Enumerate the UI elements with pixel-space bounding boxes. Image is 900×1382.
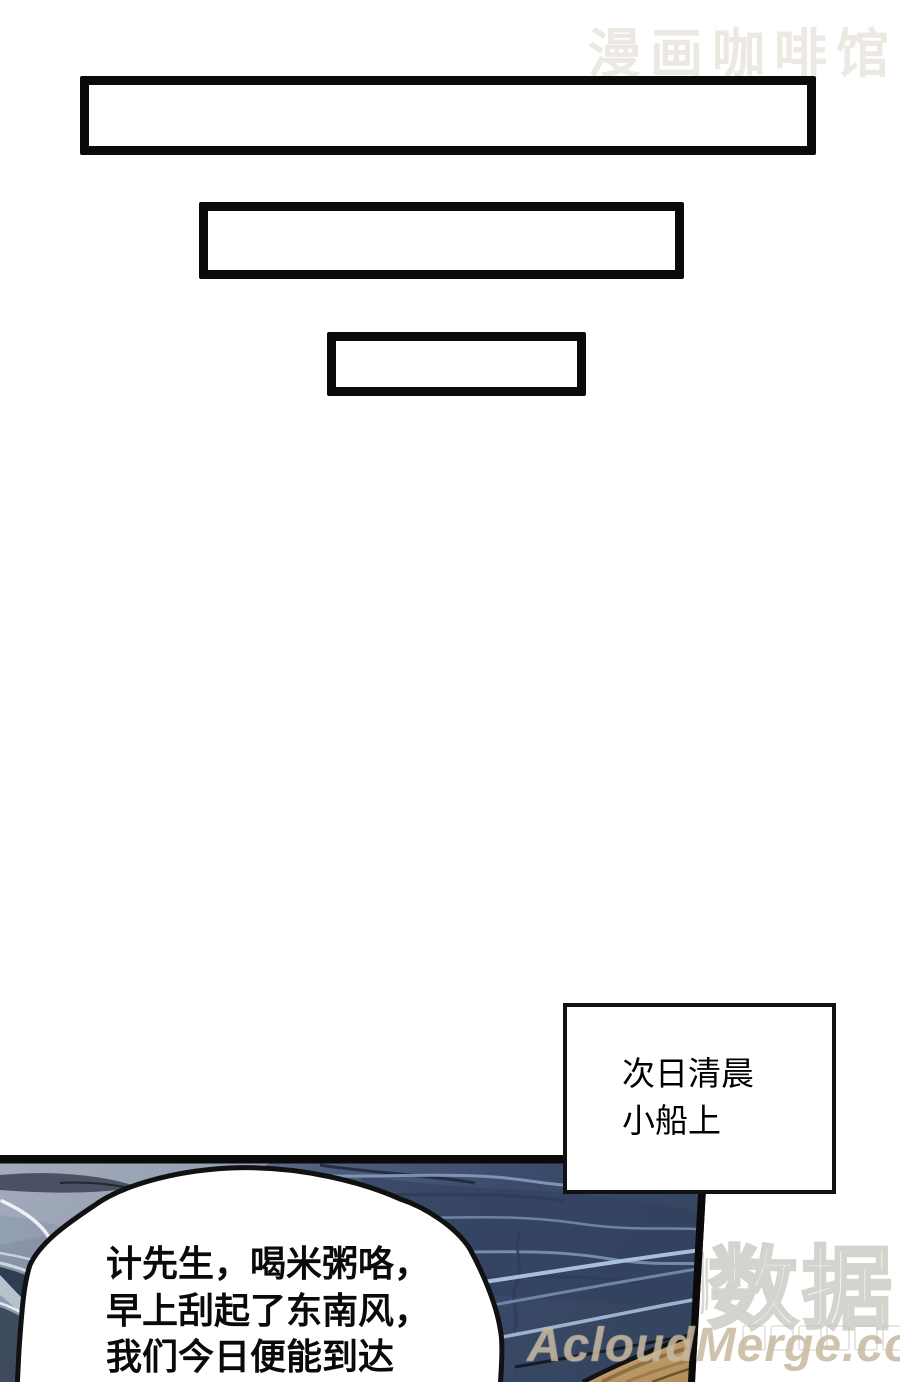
empty-panel-box-2 (199, 202, 684, 279)
caption-line-2: 小船上 (622, 1098, 754, 1145)
caption-line-1: 次日清晨 (622, 1051, 754, 1098)
speech-bubble-text: 计先生，喝米粥咯， 早上刮起了东南风， 我们今日便能到达 (106, 1241, 430, 1381)
site-watermark: AcloudMerge.com (527, 1320, 900, 1372)
caption-box: 次日清晨 小船上 (563, 1003, 836, 1194)
speech-line-1: 计先生，喝米粥咯， (106, 1241, 430, 1288)
empty-panel-box-1 (80, 76, 816, 155)
comic-page: 漫画咖啡馆 数据 (0, 0, 900, 1382)
partial-watermark-glyph (702, 1251, 707, 1314)
caption-text: 次日清晨 小船上 (622, 1051, 754, 1144)
speech-line-3: 我们今日便能到达 (106, 1334, 430, 1381)
speech-line-2: 早上刮起了东南风， (106, 1288, 430, 1335)
empty-panel-box-3 (327, 332, 586, 396)
